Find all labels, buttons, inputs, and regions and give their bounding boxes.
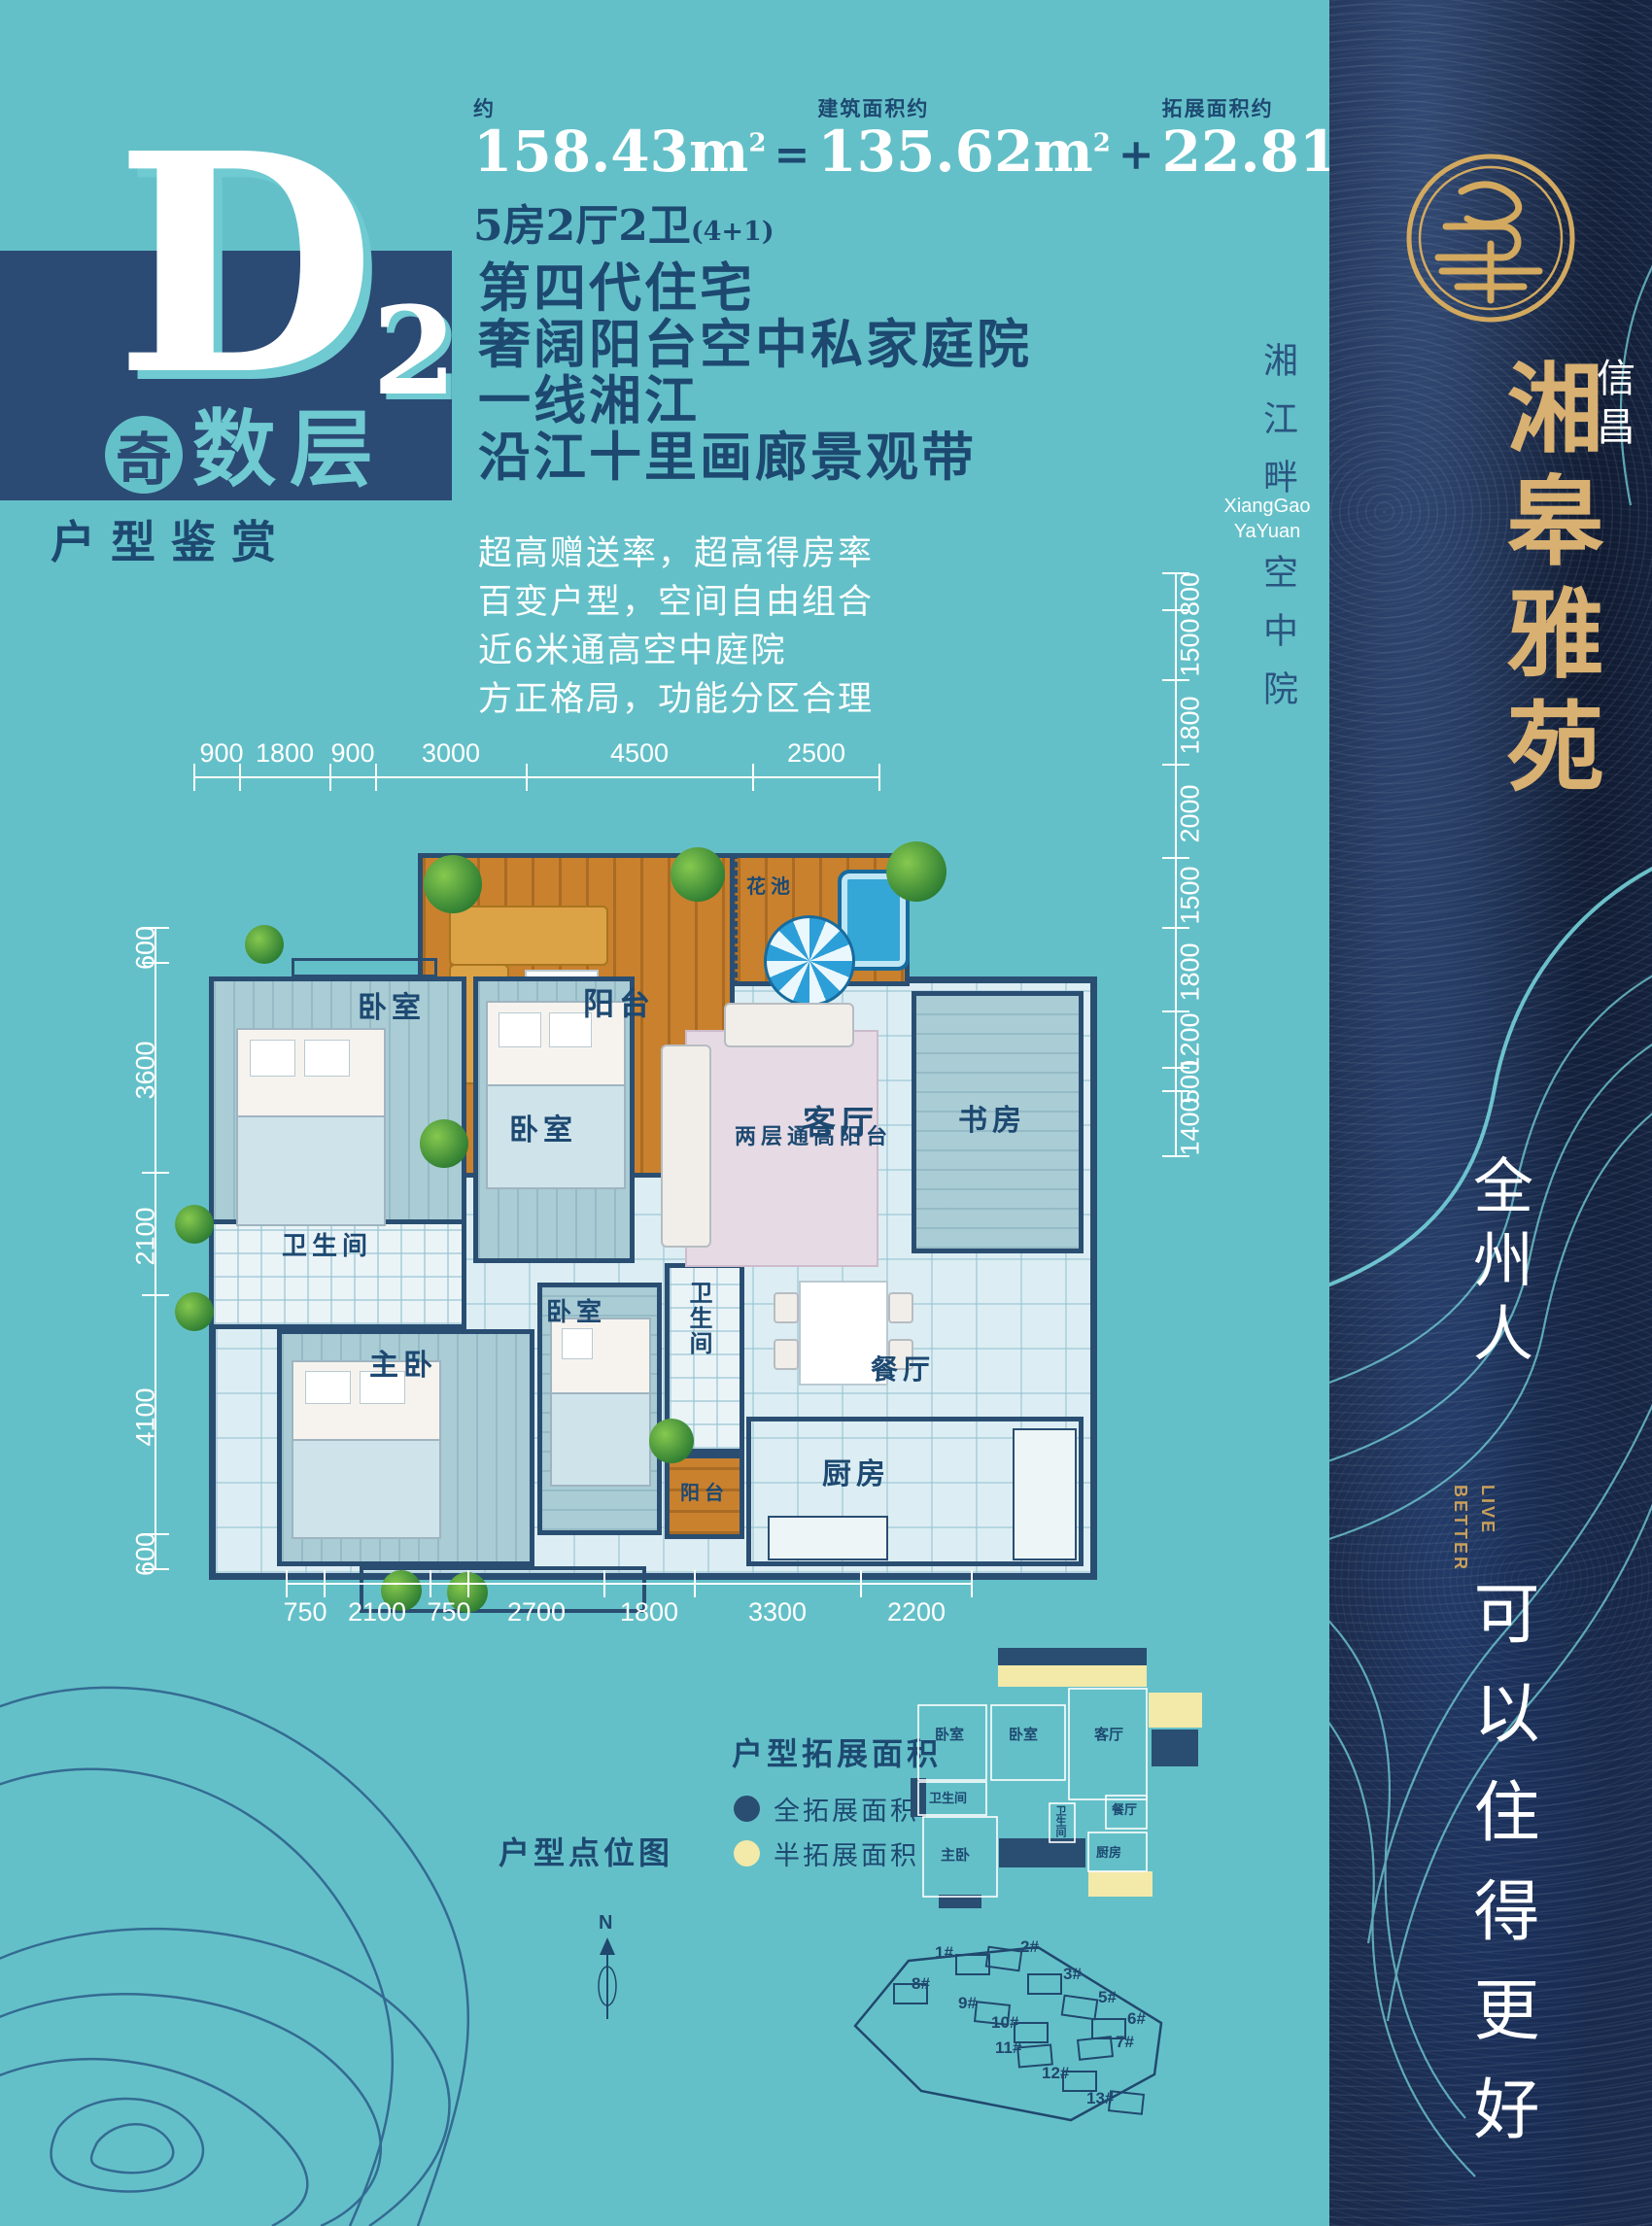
label-living: 客厅: [803, 1096, 878, 1144]
dim-top: 1800: [251, 738, 319, 769]
label-bedroom3: 卧室: [546, 1292, 606, 1328]
mini-label-bedroom2: 卧室: [1009, 1724, 1038, 1744]
mini-label-study: 书房: [1160, 1738, 1189, 1759]
feature-2: 百变户型，空间自由组合: [478, 578, 874, 627]
building-label: 3#: [1063, 1965, 1082, 1984]
headline-3: 一线湘江: [478, 373, 1032, 429]
dim-top: 3000: [417, 738, 485, 769]
dim-bottom: 3300: [743, 1597, 811, 1627]
label-flower-bed: 花池: [746, 871, 795, 899]
mini-label-flower-bed: 花池: [1057, 1649, 1083, 1667]
slogan-en-live: LIVE: [1477, 1485, 1497, 1535]
dim-bottom: 750: [415, 1597, 483, 1627]
chair: [774, 1339, 799, 1370]
real-estate-poster: D 2 奇 数层 户型鉴赏 约 158.43m2 = 建筑面积约 135.62m…: [0, 0, 1652, 2226]
plant-icon: [245, 925, 284, 964]
label-bedroom1: 卧室: [358, 983, 426, 1026]
strip-en: XiangGao YaYuan: [1221, 494, 1314, 544]
label-bath1: 卫生间: [282, 1226, 372, 1262]
expansion-title: 户型拓展面积: [732, 1729, 942, 1774]
building-label: 11#: [995, 2038, 1021, 2058]
mini-label-kitchen: 厨房: [1096, 1842, 1121, 1861]
headline-2: 奢阔阳台空中私家庭院: [478, 317, 1032, 373]
plant-icon: [420, 1119, 468, 1168]
feature-4: 方正格局，功能分区合理: [478, 675, 874, 724]
half-expansion-dot: [734, 1840, 760, 1866]
slogan-cn2: 可以住得更好: [1452, 1579, 1548, 2174]
legend-full-expansion: 全拓展面积: [734, 1790, 919, 1828]
outdoor-sofa: [449, 906, 608, 966]
dim-right: 1500: [1176, 862, 1206, 930]
plus-sign: +: [1111, 130, 1162, 182]
dim-left: 600: [131, 914, 161, 982]
label-study: 书房: [958, 1096, 1026, 1139]
headline-4: 沿江十里画廊景观带: [478, 429, 1032, 486]
dim-left: 2100: [131, 1203, 161, 1271]
plant-icon: [175, 1205, 214, 1244]
mini-label-bath2: 卫生间: [1052, 1805, 1068, 1837]
plant-icon: [671, 847, 725, 902]
label-bath2: 卫生间: [682, 1281, 716, 1356]
dim-bottom: 2100: [343, 1597, 411, 1627]
mini-expansion-diagram: [911, 1648, 1202, 1908]
brand-name: 湘皋雅苑: [1477, 358, 1618, 808]
odd-floor-circle: 奇: [105, 416, 183, 494]
dim-bottom: 2700: [502, 1597, 570, 1627]
dim-left: 4100: [131, 1384, 161, 1452]
feature-3: 近6米通高空中庭院: [478, 627, 874, 675]
kitchen-counter2: [768, 1516, 888, 1560]
label-small-balcony: 阳台: [680, 1477, 729, 1505]
living-sofa: [661, 1045, 711, 1248]
label-master: 主卧: [369, 1341, 437, 1384]
mini-label-double-balcony: 两层通高阳台: [1069, 1669, 1139, 1686]
label-dining: 餐厅: [871, 1349, 935, 1387]
full-expansion-label: 全拓展面积: [774, 1790, 919, 1828]
mini-label-balcony: 阳台: [1013, 1668, 1038, 1687]
feature-list: 超高赠送率，超高得房率 百变户型，空间自由组合 近6米通高空中庭院 方正格局，功…: [478, 530, 874, 724]
mini-label-balcony-bottom: 阳台: [1104, 1873, 1129, 1892]
building-label: 8#: [912, 1974, 930, 1994]
plant-icon: [175, 1292, 214, 1331]
odd-floor-char: 奇: [116, 414, 172, 496]
bed-bedroom2: [486, 1001, 626, 1189]
dim-top: 900: [319, 738, 387, 769]
dim-left: 3600: [131, 1037, 161, 1105]
living-sofa2: [724, 1003, 854, 1047]
mini-label-dining: 餐厅: [1112, 1799, 1137, 1818]
dim-bottom: 750: [271, 1597, 339, 1627]
label-kitchen: 厨房: [822, 1450, 890, 1492]
dim-right: 1800: [1176, 692, 1206, 760]
building-label: 9#: [958, 1994, 977, 2013]
mini-label-bedroom1: 卧室: [935, 1724, 964, 1744]
building-label: 13#: [1086, 2089, 1114, 2108]
rooms-count-line: 5房2厅2卫(4+1): [473, 190, 774, 253]
mini-label-equipment: 设备平台: [1011, 1844, 1065, 1864]
building-label: 7#: [1116, 2033, 1134, 2052]
building-label: 10#: [991, 2013, 1018, 2033]
legend-half-expansion: 半拓展面积: [734, 1834, 919, 1872]
corner-contour-decoration: [0, 1688, 468, 2226]
mini-label-living: 客厅: [1094, 1724, 1123, 1744]
dim-right: 1800: [1176, 939, 1206, 1007]
north-arrow-icon: [599, 1937, 616, 2019]
chair: [774, 1292, 799, 1323]
area-figures: 约 158.43m2 = 建筑面积约 135.62m2 + 拓展面积约 22.8…: [473, 93, 1416, 182]
bed-bedroom3: [550, 1318, 651, 1487]
dim-right: 1500: [1176, 614, 1206, 682]
slogan-cn: 全州人: [1454, 1154, 1541, 1376]
building-label: 6#: [1127, 2009, 1146, 2029]
dim-right: 1400: [1176, 1093, 1206, 1161]
plant-icon: [886, 841, 946, 902]
floor-label: 数层: [192, 408, 387, 492]
dim-right: 2000: [1176, 780, 1206, 848]
total-area: 158.43m2: [473, 122, 766, 182]
strip-line2: 空中院: [1252, 554, 1302, 729]
brand-sidebar: 信昌 湘皋雅苑 全州人 LIVE BETTER 可以住得更好: [1329, 0, 1652, 2226]
unit-subtitle: 户型鉴赏: [51, 507, 292, 571]
building-label: 1#: [935, 1943, 953, 1963]
mini-label-balcony-right: 阳台: [1160, 1700, 1187, 1720]
dim-top: 900: [188, 738, 256, 769]
plant-icon: [649, 1419, 694, 1463]
chair: [888, 1292, 913, 1323]
siteplan-title: 户型点位图: [499, 1829, 673, 1873]
full-expansion-dot: [734, 1796, 760, 1822]
strip-line1: 湘江畔: [1252, 342, 1302, 517]
building-label: 5#: [1098, 1988, 1117, 2007]
headlines: 第四代住宅 奢阔阳台空中私家庭院 一线湘江 沿江十里画廊景观带: [478, 260, 1032, 486]
equals-sign: =: [766, 130, 817, 182]
building-label: 2#: [1020, 1937, 1039, 1957]
bed-master: [292, 1360, 441, 1539]
mini-label-master: 主卧: [941, 1844, 970, 1865]
half-expansion-label: 半拓展面积: [774, 1834, 919, 1872]
mini-label-bath1: 卫生间: [929, 1788, 967, 1806]
plant-icon: [424, 855, 482, 913]
label-balcony: 阳台: [583, 979, 655, 1024]
dim-bottom: 2200: [882, 1597, 950, 1627]
dim-bottom: 1800: [615, 1597, 683, 1627]
strip-en-1: XiangGao: [1221, 494, 1314, 519]
window-bump: [292, 958, 437, 977]
building-label: 12#: [1042, 2064, 1069, 2083]
north-label: N: [599, 1912, 612, 1935]
strip-en-2: YaYuan: [1221, 519, 1314, 544]
slogan-en-better: BETTER: [1450, 1485, 1470, 1572]
umbrella-icon: [764, 915, 855, 1007]
headline-1: 第四代住宅: [478, 260, 1032, 317]
dim-top: 4500: [605, 738, 673, 769]
bed-bedroom1: [236, 1028, 386, 1226]
feature-1: 超高赠送率，超高得房率: [478, 530, 874, 578]
dim-left: 600: [131, 1521, 161, 1589]
built-area: 135.62m2: [817, 122, 1110, 182]
kitchen-counter: [1013, 1428, 1077, 1560]
label-bedroom2: 卧室: [509, 1106, 577, 1148]
dim-top: 2500: [782, 738, 850, 769]
